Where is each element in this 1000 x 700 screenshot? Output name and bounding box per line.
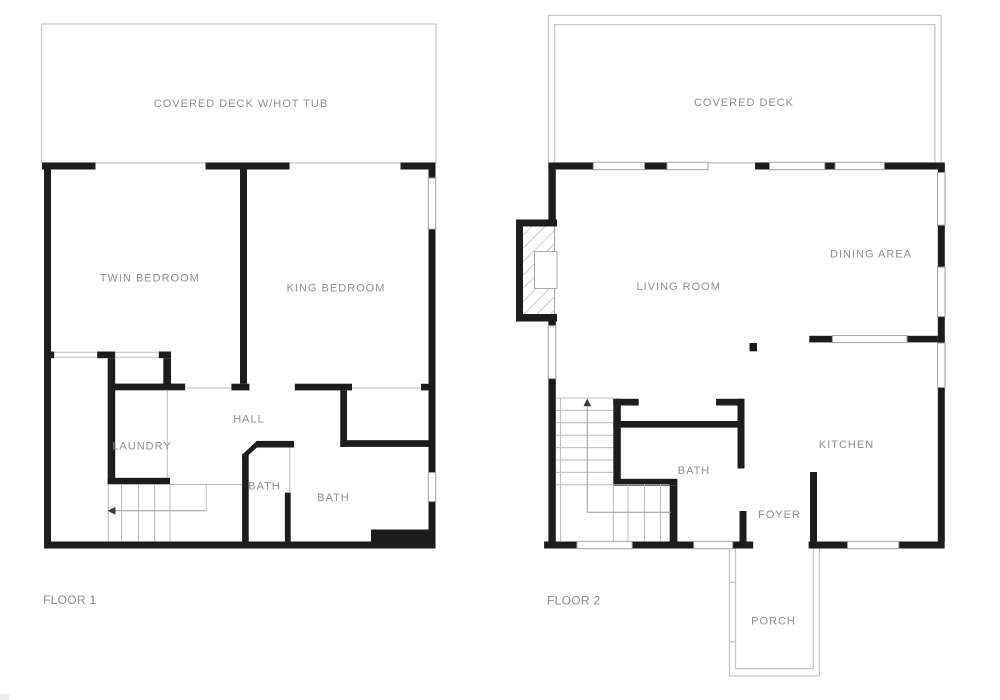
svg-text:COVERED DECK W/HOT TUB: COVERED DECK W/HOT TUB — [154, 98, 328, 110]
svg-text:DINING AREA: DINING AREA — [830, 249, 912, 261]
svg-text:BATH: BATH — [317, 492, 350, 504]
svg-text:TWIN BEDROOM: TWIN BEDROOM — [100, 273, 200, 285]
svg-text:KITCHEN: KITCHEN — [819, 439, 874, 451]
svg-text:HALL: HALL — [233, 414, 265, 426]
svg-text:FLOOR 1: FLOOR 1 — [43, 593, 96, 607]
svg-text:LAUNDRY: LAUNDRY — [112, 441, 171, 453]
svg-text:PORCH: PORCH — [751, 616, 796, 628]
svg-text:COVERED DECK: COVERED DECK — [694, 97, 794, 109]
svg-text:KING BEDROOM: KING BEDROOM — [287, 283, 386, 295]
svg-text:FOYER: FOYER — [758, 509, 801, 521]
svg-text:BATH: BATH — [248, 481, 281, 493]
svg-text:FLOOR 2: FLOOR 2 — [547, 594, 600, 608]
svg-text:BATH: BATH — [678, 465, 711, 477]
svg-text:LIVING ROOM: LIVING ROOM — [637, 281, 721, 293]
